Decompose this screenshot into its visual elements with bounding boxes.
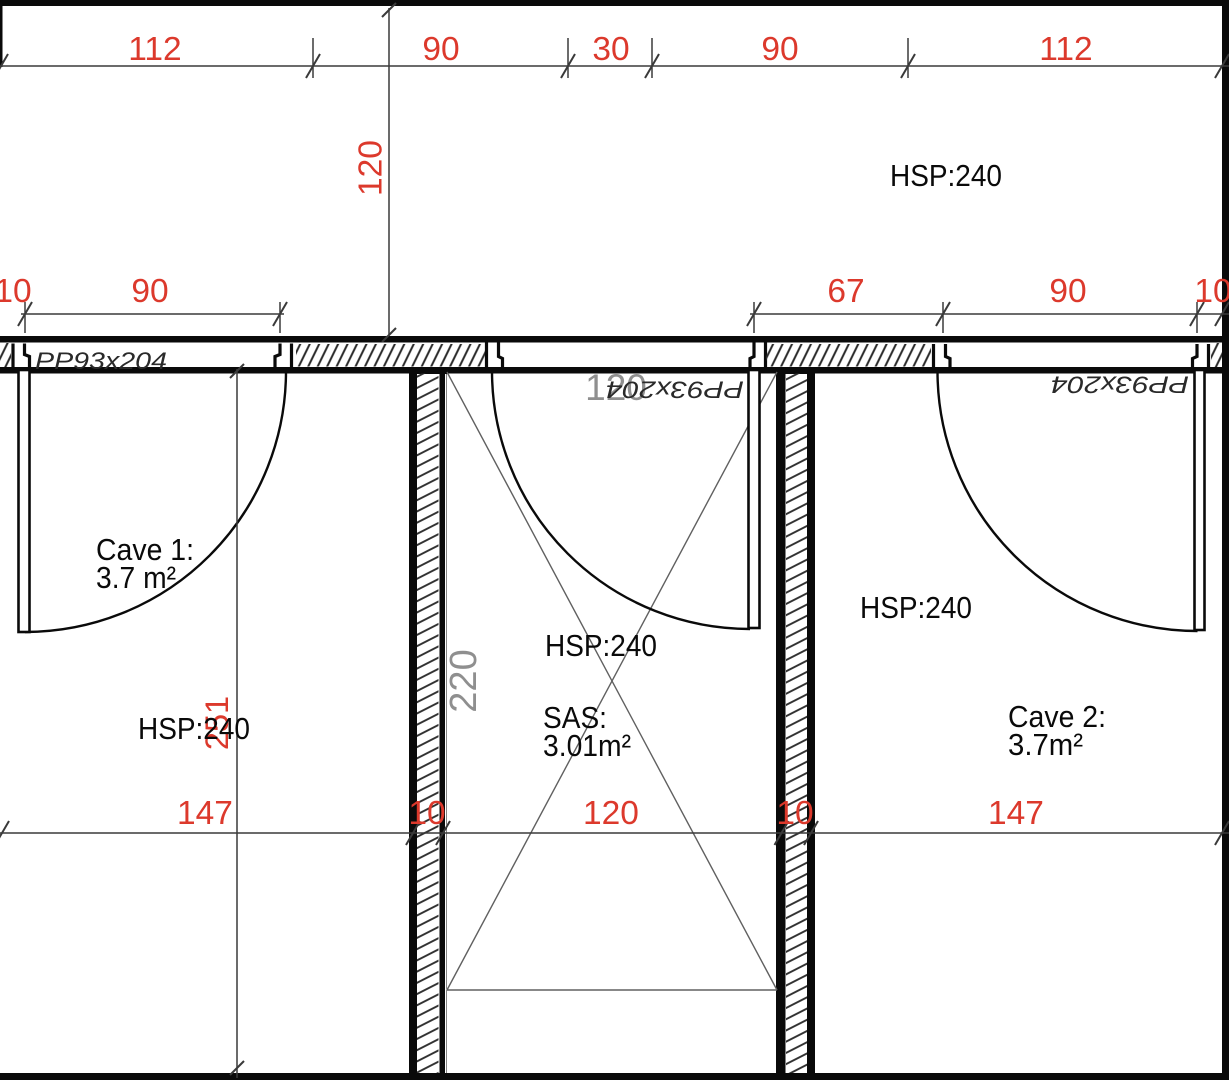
svg-text:HSP:240: HSP:240 <box>138 711 250 746</box>
svg-text:HSP:240: HSP:240 <box>860 590 972 625</box>
svg-text:220: 220 <box>443 649 485 712</box>
svg-text:67: 67 <box>827 273 864 310</box>
svg-text:147: 147 <box>988 795 1044 832</box>
svg-text:120: 120 <box>583 795 639 832</box>
svg-text:10: 10 <box>408 795 445 832</box>
svg-text:10: 10 <box>0 273 32 310</box>
svg-text:PP93x204: PP93x204 <box>1051 371 1189 398</box>
svg-text:10: 10 <box>1194 273 1229 310</box>
svg-text:PP93x204: PP93x204 <box>35 348 167 375</box>
svg-text:3.7 m²: 3.7 m² <box>96 560 176 595</box>
svg-text:3.01m²: 3.01m² <box>543 728 631 763</box>
svg-text:HSP:240: HSP:240 <box>545 628 657 663</box>
svg-text:112: 112 <box>128 31 181 68</box>
svg-text:HSP:240: HSP:240 <box>890 158 1002 193</box>
svg-text:120: 120 <box>353 140 390 196</box>
svg-text:147: 147 <box>177 795 233 832</box>
svg-text:90: 90 <box>761 31 798 68</box>
svg-text:10: 10 <box>776 795 813 832</box>
svg-text:3.7m²: 3.7m² <box>1008 727 1083 762</box>
svg-text:112: 112 <box>1039 31 1092 68</box>
svg-text:30: 30 <box>592 31 629 68</box>
svg-text:90: 90 <box>422 31 459 68</box>
svg-text:PP93x204: PP93x204 <box>606 376 744 403</box>
svg-text:90: 90 <box>131 273 168 310</box>
svg-text:90: 90 <box>1049 273 1086 310</box>
